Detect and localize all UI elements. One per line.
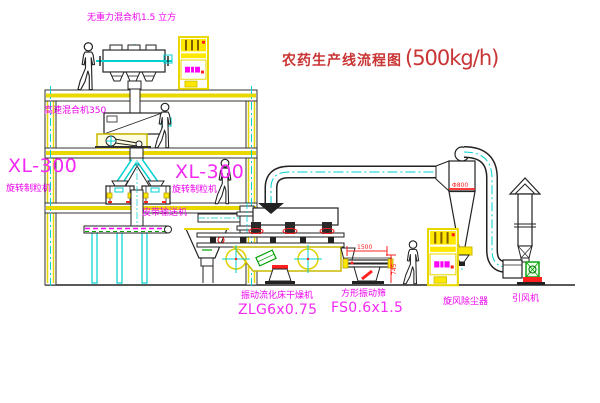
belt-conveyor-label: 皮带输送机 [142, 209, 187, 218]
sieve-model-label: FS0.6x1.5 [331, 301, 403, 315]
granulator-left-model: XL-300 [8, 157, 77, 176]
granulator-mid-name: 旋转制粒机 [172, 186, 217, 195]
granulator-left-name: 旋转制粒机 [6, 185, 51, 194]
granulator-left-unit [106, 181, 134, 204]
fan-label: 引风机 [512, 295, 539, 304]
dryer-to-cyclone-duct [258, 161, 449, 214]
sieve-length-dim: 1500 [357, 244, 372, 251]
diagram-title: 农药生产线流程图 (500kg/h) [282, 46, 498, 70]
square-sieve-unit: 1500 745 [341, 244, 398, 284]
gravity-mixer-label: 无重力混合机1.5 立方 [87, 14, 176, 23]
cyclone-label: 旋风除尘器 [443, 298, 488, 307]
dryer-name-label: 振动流化床干燥机 [241, 292, 313, 301]
control-cabinet-right [428, 229, 458, 285]
drop-chute [131, 160, 143, 232]
control-cabinet-top [179, 37, 208, 89]
sieve-name-label: 方形振动筛 [341, 290, 386, 299]
person-figure [78, 43, 95, 90]
title-capacity: (500kg/h) [405, 46, 498, 70]
high-speed-mixer-label: 高速混合机350 [44, 107, 106, 116]
title-chinese: 农药生产线流程图 [282, 50, 402, 70]
gravity-mixer [96, 44, 172, 114]
exhaust-stack [510, 178, 540, 262]
dryer-exhaust-hood [249, 208, 338, 234]
sieve-height-dim: 745 [391, 263, 398, 275]
granulator-right-unit [142, 181, 170, 204]
dryer-model-label: ZLG6x0.75 [238, 303, 317, 317]
granulator-mid-model: XL-300 [175, 163, 244, 182]
cyclone-dia-dim: Φ800 [452, 182, 468, 189]
induced-draft-fan [503, 260, 545, 285]
belt-conveyor-unit [84, 226, 172, 283]
person-figure [403, 241, 418, 284]
diagram-canvas: Φ800 [0, 0, 600, 403]
